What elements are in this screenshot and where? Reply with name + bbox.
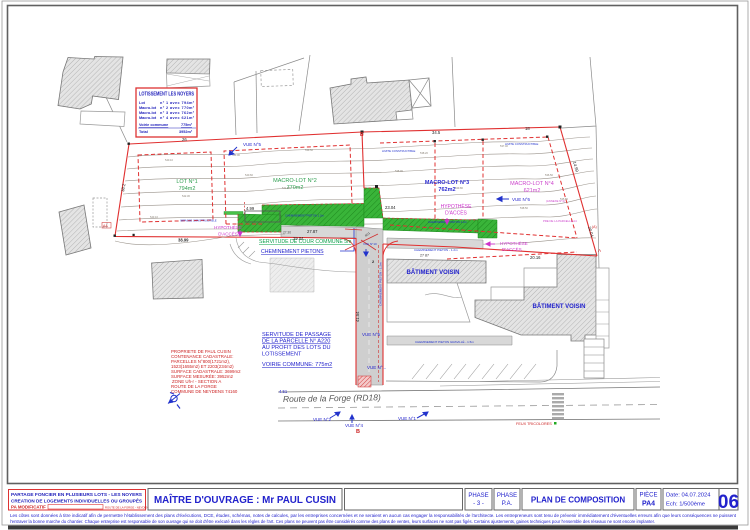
svg-text:n° 2 avec 770m²: n° 2 avec 770m² xyxy=(160,106,195,110)
svg-text:(ANNEXE N°4): (ANNEXE N°4) xyxy=(546,199,565,203)
svg-text:VUE N°1: VUE N°1 xyxy=(398,416,417,421)
svg-text:DE LA PARCELLE N° A220: DE LA PARCELLE N° A220 xyxy=(262,339,330,345)
svg-text:Total: Total xyxy=(139,130,148,134)
svg-text:MACRO-LOT N°3: MACRO-LOT N°3 xyxy=(425,180,469,186)
svg-text:LIMITE CONSTRUCTIBLE: LIMITE CONSTRUCTIBLE xyxy=(382,149,416,153)
svg-text:PLAN DE COMPOSITION: PLAN DE COMPOSITION xyxy=(531,496,625,505)
svg-text:AU PROFIT DES LOTS DU: AU PROFIT DES LOTS DU xyxy=(262,345,331,351)
svg-text:06: 06 xyxy=(718,492,739,513)
svg-text:VOIRIE COMMUNE: 775m2: VOIRIE COMMUNE: 775m2 xyxy=(262,362,332,368)
svg-text:LOT N°1: LOT N°1 xyxy=(176,179,197,185)
svg-text:20.16: 20.16 xyxy=(530,255,541,260)
svg-text:PIÈCE: PIÈCE xyxy=(639,492,657,499)
svg-text:D'ACCÈS: D'ACCÈS xyxy=(502,246,522,252)
svg-text:540.10: 540.10 xyxy=(165,158,173,162)
svg-text:VUE N°6: VUE N°6 xyxy=(512,197,531,202)
svg-text:539.50: 539.50 xyxy=(305,148,313,152)
svg-text:Les côtes sont données à titre: Les côtes sont données à titre indicatif… xyxy=(10,513,737,518)
svg-text:VUE N°5: VUE N°5 xyxy=(362,332,381,337)
svg-text:38.99: 38.99 xyxy=(178,238,189,243)
svg-text:- 3 -: - 3 - xyxy=(473,501,484,507)
svg-text:P.A.: P.A. xyxy=(502,501,513,507)
svg-text:23.04: 23.04 xyxy=(385,205,396,210)
svg-text:LIMITE CONSTRUCTIBLE: LIMITE CONSTRUCTIBLE xyxy=(505,142,539,146)
svg-text:621m2: 621m2 xyxy=(524,188,541,194)
svg-text:n° 3 avec 762m²: n° 3 avec 762m² xyxy=(160,111,195,115)
svg-text:41.54: 41.54 xyxy=(355,311,360,322)
svg-text:MACRO-LOT N°2: MACRO-LOT N°2 xyxy=(273,178,317,184)
svg-text:SERVITUDE DE PASSAGE: SERVITUDE DE PASSAGE xyxy=(262,332,331,338)
svg-text:Macro-lot: Macro-lot xyxy=(139,111,157,115)
svg-text:4.99: 4.99 xyxy=(246,206,255,211)
svg-text:770m2: 770m2 xyxy=(287,185,304,191)
svg-text:n° 1 avec 794m²: n° 1 avec 794m² xyxy=(160,101,195,105)
svg-text:Lot: Lot xyxy=(139,101,146,105)
svg-text:AA: AA xyxy=(103,224,108,228)
svg-text:Route de la Forge (RD18): Route de la Forge (RD18) xyxy=(283,392,381,404)
svg-text:CHEMINEMENT PIETON 1.2m: CHEMINEMENT PIETON 1.2m xyxy=(285,214,325,218)
svg-text:HYPOTHÈSE: HYPOTHÈSE xyxy=(441,203,473,210)
svg-text:542.30: 542.30 xyxy=(182,194,190,198)
svg-text:VUE N°...: VUE N°... xyxy=(367,365,386,370)
svg-text:COMMUNE DE NEYDENS 74160: COMMUNE DE NEYDENS 74160 xyxy=(171,389,238,394)
svg-text:BÂTIMENT VOISIN: BÂTIMENT VOISIN xyxy=(532,303,585,310)
svg-text:PARTAGE FONCIER EN PLUSIEURS L: PARTAGE FONCIER EN PLUSIEURS LOTS - LES … xyxy=(11,492,143,498)
svg-text:LOTISSEMENT LES NOYERS: LOTISSEMENT LES NOYERS xyxy=(139,92,195,98)
svg-text:CHEMINEMENT PIETON - 1.2m: CHEMINEMENT PIETON - 1.2m xyxy=(379,262,383,306)
svg-text:Macro-lot: Macro-lot xyxy=(139,106,157,110)
svg-text:VUE N°4: VUE N°4 xyxy=(345,423,364,428)
svg-text:536.50: 536.50 xyxy=(545,173,553,177)
svg-text:762m2: 762m2 xyxy=(438,187,455,193)
svg-text:CHEMINEMENT PIETONS: CHEMINEMENT PIETONS xyxy=(261,249,324,255)
svg-text:VUE N°5: VUE N°5 xyxy=(243,142,262,147)
svg-text:PHASE: PHASE xyxy=(497,493,517,499)
svg-text:IMPASSE CONSTRUCTIBLE: IMPASSE CONSTRUCTIBLE xyxy=(180,219,217,223)
svg-text:26: 26 xyxy=(182,137,187,142)
svg-text:PRE DE LA PARCELLE A4: PRE DE LA PARCELLE A4 xyxy=(543,219,577,223)
svg-text:FEUX TRICOLORES: FEUX TRICOLORES xyxy=(516,422,552,426)
svg-text:HYPOTHÈSE: HYPOTHÈSE xyxy=(214,224,242,230)
svg-text:D'ACCÈS: D'ACCÈS xyxy=(445,210,467,217)
svg-text:A: A xyxy=(598,248,601,253)
svg-text:4.51: 4.51 xyxy=(279,389,288,394)
svg-text:539.80: 539.80 xyxy=(455,186,463,190)
svg-text:CHEMINEMENT PIETON - 1.2m: CHEMINEMENT PIETON - 1.2m xyxy=(414,248,458,252)
svg-text:MAÎTRE D'OUVRAGE : Mr PAUL CU: MAÎTRE D'OUVRAGE : Mr PAUL CUSIN xyxy=(154,493,336,506)
svg-text:538.90: 538.90 xyxy=(395,169,403,173)
svg-text:MACRO-LOT N°4: MACRO-LOT N°4 xyxy=(510,181,554,187)
svg-text:29.04: 29.04 xyxy=(293,236,304,241)
svg-text:18: 18 xyxy=(525,126,530,131)
svg-text:PHASE: PHASE xyxy=(468,493,488,499)
svg-text:HYPOTHÈSE: HYPOTHÈSE xyxy=(500,240,528,246)
svg-text:3952m²: 3952m² xyxy=(179,130,193,134)
svg-text:l'entraver la bonne marche du: l'entraver la bonne marche du chantier. … xyxy=(10,519,655,524)
svg-text:27.87: 27.87 xyxy=(307,229,318,234)
svg-text:538.50: 538.50 xyxy=(520,206,528,210)
svg-text:LOTISSEMENT: LOTISSEMENT xyxy=(262,352,302,358)
svg-text:27 87: 27 87 xyxy=(420,254,429,258)
svg-text:540.60: 540.60 xyxy=(245,173,253,177)
svg-text:543.10: 543.10 xyxy=(150,215,158,219)
svg-text:Voirie commune: Voirie commune xyxy=(139,123,168,127)
svg-text:Date: 04.07.2024: Date: 04.07.2024 xyxy=(666,493,711,499)
svg-text:n° 4 avec 621m²: n° 4 avec 621m² xyxy=(160,116,195,120)
svg-text:775m²: 775m² xyxy=(181,123,193,127)
svg-text:B: B xyxy=(360,132,364,138)
svg-text:VUE N°2: VUE N°2 xyxy=(313,417,332,422)
svg-text:SERVITUDE DE COUR COMMUNE 5m: SERVITUDE DE COUR COMMUNE 5m xyxy=(259,239,351,245)
svg-text:PA MODIFICATIF: PA MODIFICATIF xyxy=(11,505,46,510)
svg-text:34.5: 34.5 xyxy=(432,130,441,135)
svg-text:B: B xyxy=(356,429,360,435)
svg-text:27.36: 27.36 xyxy=(283,231,291,235)
svg-text:538.20: 538.20 xyxy=(420,151,428,155)
svg-text:BÂTIMENT VOISIN: BÂTIMENT VOISIN xyxy=(406,269,459,276)
svg-text:794m2: 794m2 xyxy=(179,186,196,192)
svg-text:PA4: PA4 xyxy=(642,501,655,508)
svg-text:D'ACCÈS: D'ACCÈS xyxy=(218,231,238,237)
svg-text:CHEMINEMENT PIETON GRAVILLÉ -: CHEMINEMENT PIETON GRAVILLÉ - 1.5m xyxy=(415,339,474,344)
svg-text:Ech: 1/500ème: Ech: 1/500ème xyxy=(666,502,705,508)
svg-text:VUE N°10: VUE N°10 xyxy=(363,242,377,246)
svg-text:Macro-lot: Macro-lot xyxy=(139,116,157,120)
